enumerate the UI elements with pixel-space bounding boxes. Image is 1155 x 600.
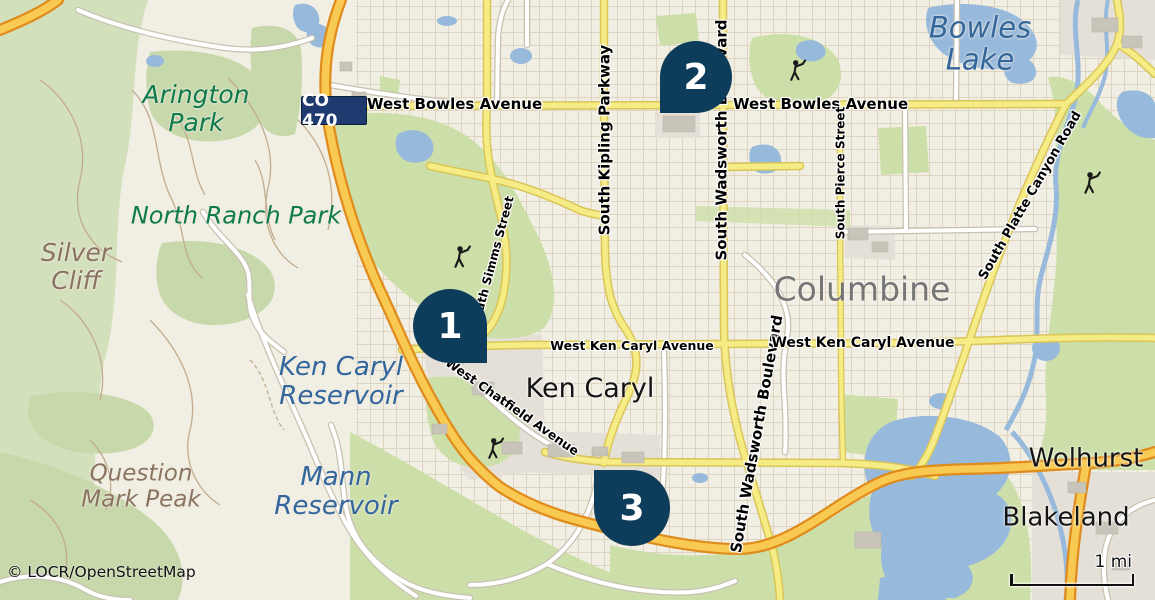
marker-number: 2 [683,57,708,98]
map-marker-2[interactable]: 2 [660,41,732,113]
map-marker-1[interactable]: 1 [413,289,487,363]
marker-number: 1 [437,306,462,347]
marker-number: 3 [619,488,644,529]
scale-bar: 1 mi [1010,552,1134,586]
map-marker-3[interactable]: 3 [594,470,670,546]
map-canvas[interactable]: Bowles Lake Arington Park North Ranch Pa… [0,0,1155,600]
basemap [0,0,1155,600]
map-attribution: © LOCR/OpenStreetMap [7,563,196,581]
scale-label: 1 mi [1010,552,1134,572]
scale-line [1010,575,1134,586]
route-badge-co470: CO 470 [301,96,367,125]
